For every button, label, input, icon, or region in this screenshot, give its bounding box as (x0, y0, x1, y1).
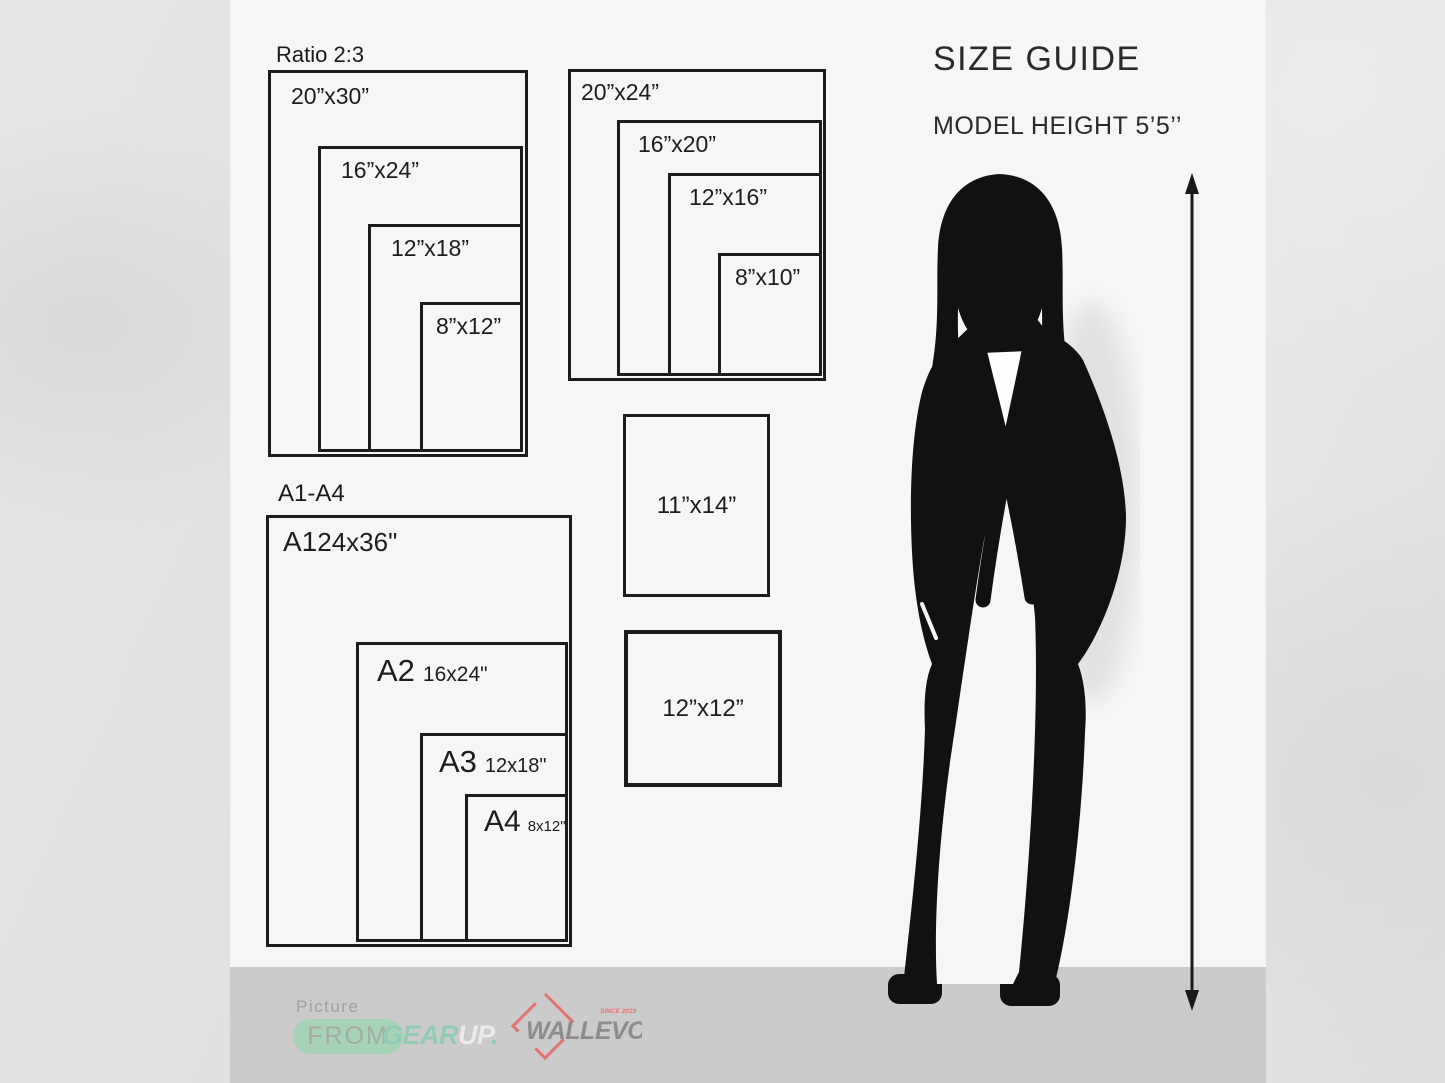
a4-name: A4 (484, 805, 521, 839)
size-label-a3: A3 12x18" (439, 744, 547, 780)
size-box-a4: A4 8x12" (465, 794, 568, 942)
height-arrow-icon (1180, 172, 1204, 1012)
a-group-title: A1-A4 (278, 480, 345, 508)
a4-dim: 8x12" (528, 818, 566, 835)
size-label-11x14: 11”x14” (626, 417, 767, 594)
a1-name: A1 (283, 526, 317, 558)
size-box-11x14: 11”x14” (623, 414, 770, 597)
a3-dim: 12x18" (485, 755, 547, 778)
size-label-a4: A4 8x12" (484, 805, 566, 839)
a2-name: A2 (377, 653, 415, 689)
size-label-a1: A1 24x36" (283, 526, 397, 558)
size-label-8x10: 8”x10” (735, 264, 800, 291)
size-box-8x12: 8”x12” (420, 302, 523, 452)
ratio-group-title: Ratio 2:3 (276, 42, 364, 68)
size-box-8x10: 8”x10” (718, 253, 822, 376)
a1-dim: 24x36" (317, 527, 397, 558)
picture-label: Picture (296, 997, 359, 1017)
gearup-dot: . (491, 1020, 498, 1050)
model-face (955, 218, 1045, 350)
up-text: UP (458, 1020, 491, 1050)
size-label-16x20: 16”x20” (638, 131, 716, 158)
wallevo-logo: SINCE 2019 WALLEVO (507, 987, 642, 1067)
size-box-12x12: 12”x12” (624, 630, 782, 787)
size-label-12x12: 12”x12” (628, 634, 778, 783)
size-label-16x24: 16”x24” (341, 157, 419, 184)
size-label-12x18: 12”x18” (391, 235, 469, 262)
size-label-20x30: 20”x30” (291, 83, 369, 110)
a2-dim: 16x24" (423, 663, 488, 687)
model-height-label: MODEL HEIGHT 5’5’’ (933, 112, 1182, 141)
size-guide-image: Ratio 2:3 20”x30” 16”x24” 12”x18” 8”x12”… (0, 0, 1445, 1083)
wallevo-since: SINCE 2019 (600, 1008, 637, 1015)
from-label: FROM (307, 1022, 389, 1051)
content-area: Ratio 2:3 20”x30” 16”x24” 12”x18” 8”x12”… (230, 0, 1266, 1083)
gear-text: GEAR (382, 1020, 458, 1050)
a3-name: A3 (439, 744, 477, 780)
size-label-a2: A2 16x24" (377, 653, 488, 689)
size-label-8x12: 8”x12” (436, 313, 501, 340)
model-silhouette (880, 172, 1140, 1012)
size-label-12x16: 12”x16” (689, 184, 767, 211)
model-left-foot (888, 974, 942, 1004)
gearup-logo: GEARUP. (382, 1020, 498, 1051)
wallevo-text: WALLEVO (526, 1017, 642, 1045)
size-label-20x24: 20”x24” (581, 79, 659, 106)
page-title: SIZE GUIDE (933, 40, 1141, 79)
